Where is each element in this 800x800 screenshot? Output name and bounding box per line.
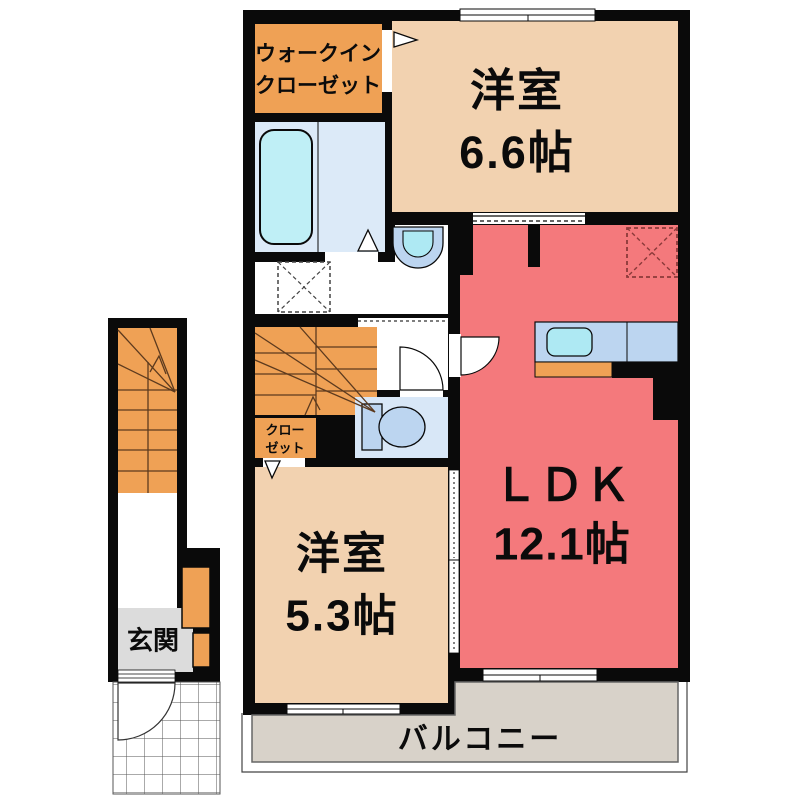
bathtub — [260, 130, 312, 244]
room-walk-in-closet — [255, 24, 382, 113]
wic-door-opening — [382, 30, 392, 92]
shoe-cabinet-lower — [193, 633, 210, 667]
wall-stub-ldk-left — [460, 222, 473, 275]
room-bedroom2 — [255, 467, 448, 703]
wall-kitchen-notch-h — [612, 362, 690, 378]
toilet-bowl — [379, 407, 425, 447]
ldk-door-opening — [449, 334, 461, 377]
floor-plan: ウォークイン クローゼット 洋室 6.6帖 ＬＤＫ 12.1帖 洋室 5.3帖 … — [0, 0, 800, 800]
bathroom-door-opening — [325, 252, 378, 262]
wash-basin-bowl — [403, 231, 433, 257]
shoe-cabinet-upper — [182, 567, 210, 628]
room-bedroom1 — [392, 21, 678, 212]
floor-plan-drawing — [0, 0, 800, 800]
wall-kitchen-notch-v — [653, 378, 690, 420]
kitchen-sink — [547, 328, 592, 356]
room-ldk — [460, 225, 678, 668]
room-closet — [255, 418, 316, 458]
kitchen-cabinet-strip — [535, 362, 612, 377]
entrance-hall-landing — [118, 493, 177, 608]
sliding-door-bedroom1-ldk — [473, 213, 585, 224]
entrance-door-opening — [118, 670, 175, 682]
wall-stub-ldk-top — [528, 222, 540, 267]
